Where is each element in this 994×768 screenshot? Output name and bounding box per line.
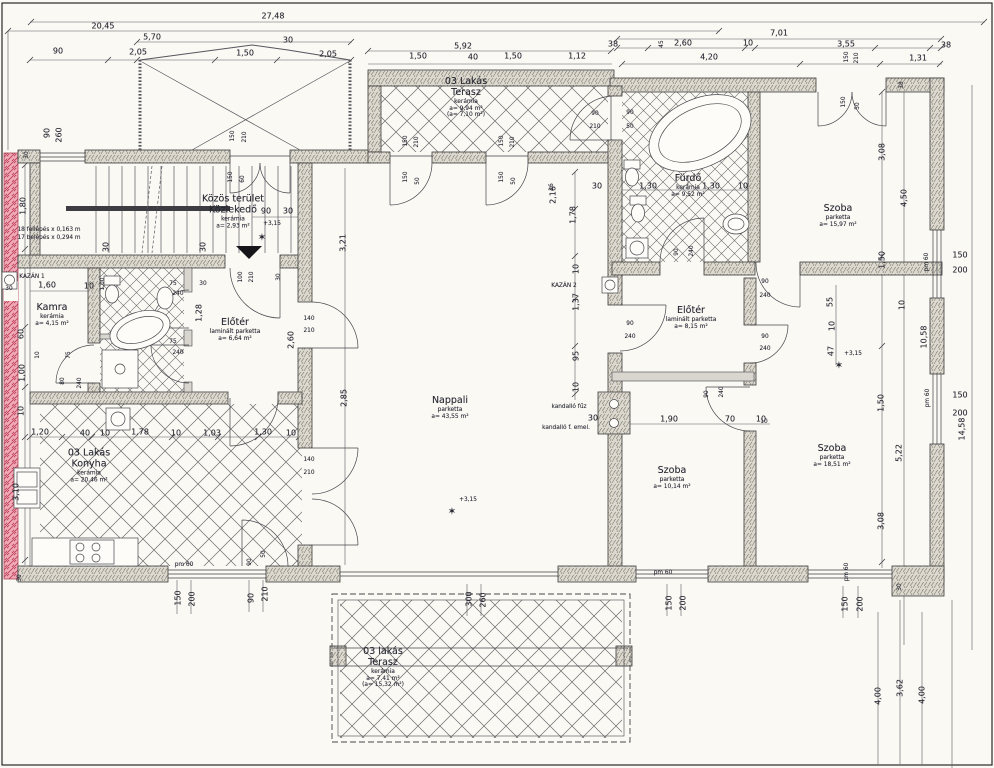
dim-label: 90: [53, 47, 63, 56]
dim-label: 240: [759, 293, 770, 299]
dim-label: 3,55: [837, 40, 855, 49]
dim-label: pm 60: [924, 253, 930, 272]
room-detail: a= 20,46 m²: [68, 477, 110, 484]
dim-label: 90: [704, 390, 710, 397]
dim-label: 1,31: [909, 54, 927, 63]
dim-label: 210: [303, 328, 314, 334]
dim-label: 90: [591, 111, 598, 117]
dim-label: 150: [403, 135, 409, 146]
dim-label: 95: [572, 351, 581, 361]
dim-label: 90: [761, 279, 768, 285]
dim-label: 10: [572, 264, 581, 274]
dim-label: 10: [760, 419, 767, 425]
dim-label: 210: [303, 470, 314, 476]
dim-label: 40: [468, 53, 478, 62]
floorplan-page: 27,4820,455,702,051,50302,05905,921,5040…: [0, 0, 994, 768]
dim-label: 30: [199, 281, 206, 287]
room-detail: a= 8,15 m²: [666, 323, 717, 330]
room-name: Előtér: [666, 306, 717, 317]
room-detail: (a= 7,10 m²): [445, 112, 487, 119]
dim-label: 30: [592, 182, 602, 191]
dim-label: 260: [479, 592, 488, 607]
dim-label: 47: [827, 346, 836, 356]
dim-label: 10: [171, 429, 181, 438]
dim-label: 90: [626, 110, 633, 116]
dim-label: 2,85: [340, 389, 349, 407]
dim-label: 30: [5, 286, 12, 292]
dim-label: 200: [188, 591, 197, 606]
dim-label: 150: [230, 130, 236, 141]
dim-label: KAZÁN 1: [19, 274, 44, 280]
dim-label: 260: [55, 127, 64, 142]
room-name: Szoba: [819, 204, 856, 215]
room-label-kozlekedo: Közös területKözlekedőkerámiaa= 2,93 m²: [202, 194, 264, 229]
dim-label: 200: [856, 596, 865, 611]
dim-label: 4,00: [918, 686, 927, 704]
dim-label: 2,60: [287, 331, 296, 349]
dim-label: pm 60: [175, 562, 194, 568]
dim-label: 1,00: [100, 278, 106, 291]
room-label-nappali: Nappaliparkettaa= 43,55 m²: [431, 396, 468, 420]
dim-label: 50: [855, 102, 861, 109]
room-name: Konyha: [68, 459, 110, 470]
room-name: Terasz: [445, 88, 487, 99]
room-label-konyha: 03 LakásKonyhakerámiaa= 20,46 m²: [68, 448, 110, 483]
room-name: Szoba: [653, 466, 690, 477]
dim-label: 10: [898, 300, 907, 310]
dim-label: 240: [689, 245, 695, 256]
dim-label: 10: [17, 406, 26, 416]
dim-label: 1,30: [639, 182, 657, 191]
dim-label: KAZÁN 2: [551, 283, 576, 289]
dim-label: pm 60: [654, 570, 673, 576]
room-detail: kerámia: [445, 99, 487, 106]
dim-label: 90: [626, 321, 633, 327]
room-detail: kerámia: [35, 314, 69, 321]
dim-label: 240: [172, 350, 183, 356]
dim-label: 210: [249, 271, 255, 282]
dim-label: 60: [240, 175, 246, 182]
dim-label: 2,05: [319, 50, 337, 59]
dim-label: 10: [572, 382, 581, 392]
dim-label: 210: [242, 131, 248, 142]
dim-label: 150: [844, 51, 850, 62]
dim-label: kandalló fűz: [551, 404, 586, 410]
dim-label: 140: [303, 316, 314, 322]
dim-label: 150: [403, 171, 409, 182]
dim-label: 40: [80, 429, 90, 438]
room-name: Előtér: [210, 318, 261, 329]
room-detail: kerámia: [68, 470, 110, 477]
dim-label: 14,58: [958, 418, 967, 441]
dim-label: 75: [169, 281, 176, 287]
dim-label: 30: [199, 242, 208, 252]
dim-label: 150: [228, 171, 234, 182]
room-name: Terasz: [362, 658, 404, 669]
dim-label: 1,80: [19, 197, 28, 215]
dim-label: 30: [102, 242, 111, 252]
room-label-szoba-1: Szobaparkettaa= 15,97 m²: [819, 204, 856, 228]
dim-label: 210: [510, 136, 516, 147]
dim-label: 27,48: [262, 12, 285, 21]
dim-label: 200: [952, 409, 967, 418]
dim-label: 55: [826, 297, 835, 307]
dim-label: 4,00: [874, 687, 883, 705]
dim-label: 7,01: [770, 29, 788, 38]
dim-label: 90: [674, 248, 680, 255]
room-detail: kerámia: [362, 669, 404, 676]
dim-label: 5,92: [454, 42, 472, 51]
dim-label: 10: [100, 429, 110, 438]
dim-label: 3,62: [896, 679, 905, 697]
dim-label: +3,15: [844, 351, 862, 357]
dim-label: 4,50: [900, 189, 909, 207]
dim-label: 1,00: [18, 364, 27, 382]
dim-label: 1,28: [195, 304, 204, 322]
dim-label: 1,50: [877, 394, 886, 412]
room-detail: a= 4,15 m²: [35, 320, 69, 327]
dim-label: 30: [276, 273, 282, 280]
dim-label: 150: [665, 595, 674, 610]
dim-label: 240: [77, 377, 83, 388]
labels-layer: 27,4820,455,702,051,50302,05905,921,5040…: [0, 0, 994, 768]
level-marker-icon: ✶: [835, 361, 843, 372]
room-detail: a= 10,14 m²: [653, 483, 690, 490]
dim-label: 1,50: [878, 251, 887, 269]
dim-label: 210: [414, 136, 420, 147]
room-name: Nappali: [431, 396, 468, 407]
dim-label: 150: [952, 251, 967, 260]
room-label-eloter-2: Előtérlaminált parkettaa= 8,15 m²: [666, 306, 717, 330]
room-detail: laminált parketta: [666, 317, 717, 324]
dim-label: 30: [283, 36, 293, 45]
room-label-szoba-3: Szobaparkettaa= 18,51 m²: [813, 444, 850, 468]
dim-label: 240: [172, 291, 183, 297]
room-detail: a= 18,51 m²: [813, 461, 850, 468]
dim-label: +3,15: [459, 497, 477, 503]
room-name: Szoba: [813, 444, 850, 455]
room-detail: parketta: [653, 477, 690, 484]
dim-label: 210: [854, 52, 860, 63]
dim-label: 150: [499, 171, 505, 182]
dim-label: 3,08: [877, 512, 886, 530]
level-marker-icon: ✶: [258, 233, 266, 244]
dim-label: 3,08: [878, 143, 887, 161]
room-detail: (a= 15,32 m²): [362, 682, 404, 689]
dim-label: 1,12: [568, 52, 586, 61]
dim-label: 20,45: [92, 22, 115, 31]
dim-label: 80: [60, 377, 66, 384]
dim-label: 30: [24, 151, 30, 158]
room-label-kamra: Kamrakerámiaa= 4,15 m²: [35, 303, 69, 327]
room-detail: a= 2,93 m²: [202, 223, 264, 230]
dim-label: 1,37: [572, 293, 581, 311]
dim-label: 1,60: [38, 281, 56, 290]
dim-label: 1,50: [504, 52, 522, 61]
dim-label: 30: [283, 207, 293, 216]
dim-label: 240: [719, 386, 725, 397]
dim-label: 18 fellépés x 0,163 m: [17, 227, 80, 233]
dim-label: 45: [659, 40, 665, 47]
dim-label: 1,50: [409, 52, 427, 61]
dim-label: 200: [952, 266, 967, 275]
room-label-furdo: Fürdőkerámiaa= 9,52 m²: [671, 174, 705, 198]
dim-label: +3,15: [263, 221, 281, 227]
dim-label: 210: [261, 586, 270, 601]
room-detail: parketta: [813, 455, 850, 462]
dim-label: 38: [899, 81, 905, 88]
dim-label: 90: [43, 128, 52, 138]
dim-label: 38: [608, 40, 618, 49]
room-detail: kerámia: [671, 185, 705, 192]
dim-label: 200: [679, 595, 688, 610]
dim-label: 1,78: [569, 206, 578, 224]
dim-label: 150: [174, 590, 183, 605]
dim-label: 10: [35, 351, 41, 358]
level-marker-icon: ✶: [448, 507, 456, 518]
dim-label: 210: [589, 124, 600, 130]
dim-label: 3,10: [12, 483, 21, 501]
dim-label: pm 60: [844, 563, 850, 582]
dim-label: 2,16: [549, 186, 558, 204]
dim-label: 10: [743, 39, 753, 48]
dim-label: 10,58: [920, 326, 929, 349]
dim-label: 240: [624, 334, 635, 340]
dim-label: 50: [261, 550, 267, 557]
dim-label: 150: [841, 596, 850, 611]
room-detail: a= 9,52 m²: [671, 191, 705, 198]
dim-label: kandalló f. emel.: [542, 425, 590, 431]
dim-label: 30: [17, 574, 23, 581]
dim-label: 10: [84, 282, 94, 291]
dim-label: 140: [303, 457, 314, 463]
dim-label: 1,30: [254, 428, 272, 437]
room-label-szoba-2: Szobaparkettaa= 10,14 m²: [653, 466, 690, 490]
dim-label: 1,50: [236, 49, 254, 58]
room-detail: parketta: [431, 407, 468, 414]
dim-label: 2,05: [129, 48, 147, 57]
dim-label: 300: [465, 591, 474, 606]
dim-label: 3,21: [339, 234, 348, 252]
dim-label: 50: [511, 177, 517, 184]
dim-label: 1,30: [702, 182, 720, 191]
room-name: Kamra: [35, 303, 69, 314]
dim-label: 1,90: [660, 415, 678, 424]
dim-label: 150: [499, 135, 505, 146]
dim-label: 90: [247, 558, 253, 565]
dim-label: 50: [626, 124, 633, 130]
room-name: Közlekedő: [202, 205, 264, 216]
dim-label: 75: [66, 351, 72, 358]
room-detail: laminált parketta: [210, 329, 261, 336]
dim-label: 4,20: [700, 53, 718, 62]
room-label-terasz-felso: 03 LakásTeraszkerámiaa= 9,94 m²(a= 7,10 …: [445, 77, 487, 119]
dim-label: 150: [952, 391, 967, 400]
dim-label: 5,70: [143, 33, 161, 42]
room-label-eloter-1: Előtérlaminált parkettaa= 6,64 m²: [210, 318, 261, 342]
dim-label: 1,78: [131, 428, 149, 437]
dim-label: 50: [415, 177, 421, 184]
room-detail: kerámia: [202, 216, 264, 223]
dim-label: 150: [841, 96, 847, 107]
room-detail: a= 43,55 m²: [431, 413, 468, 420]
room-name: Fürdő: [671, 174, 705, 185]
dim-label: 60: [17, 329, 26, 339]
dim-label: 90: [247, 593, 256, 603]
room-detail: a= 6,64 m²: [210, 335, 261, 342]
dim-label: 75: [169, 339, 176, 345]
dim-label: 30: [588, 414, 598, 423]
room-detail: a= 15,97 m²: [819, 221, 856, 228]
dim-label: 17 belépés x 0,294 m: [17, 235, 80, 241]
dim-label: 10: [738, 182, 748, 191]
dim-label: 90: [761, 334, 768, 340]
room-label-terasz-also: 03 lakásTeraszkerámiaa= 7,41 m²(a= 15,32…: [362, 647, 404, 689]
dim-label: pm 60: [925, 389, 931, 408]
dim-label: 38: [941, 41, 951, 50]
dim-label: 1,03: [203, 429, 221, 438]
dim-label: 100: [238, 271, 244, 282]
dim-label: 10: [286, 429, 296, 438]
dim-label: 10: [828, 321, 837, 331]
room-detail: parketta: [819, 215, 856, 222]
dim-label: 1,20: [31, 428, 49, 437]
dim-label: 30: [897, 583, 903, 590]
dim-label: 70: [725, 415, 735, 424]
dim-label: 240: [759, 346, 770, 352]
dim-label: 2,60: [674, 39, 692, 48]
dim-label: 5,22: [895, 444, 904, 462]
